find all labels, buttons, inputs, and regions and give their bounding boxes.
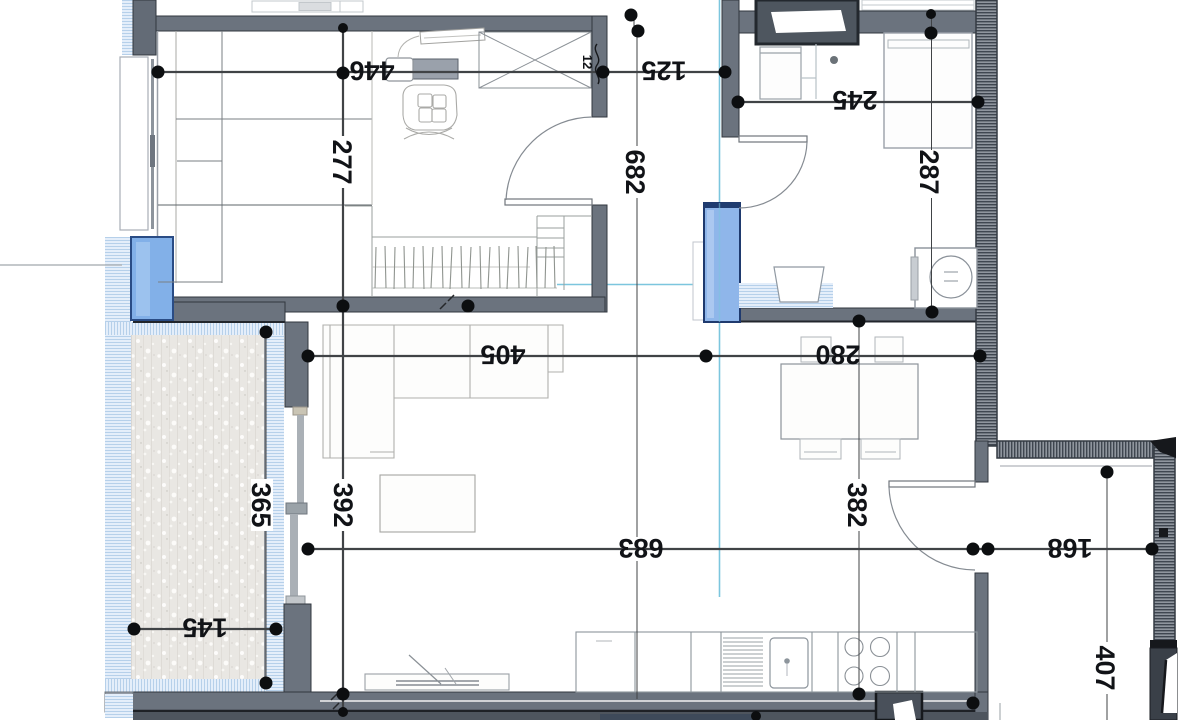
svg-text:382: 382: [842, 482, 872, 527]
svg-text:245: 245: [832, 85, 877, 115]
svg-text:280: 280: [815, 340, 860, 370]
svg-text:683: 683: [618, 533, 663, 563]
svg-text:125: 125: [641, 56, 686, 86]
svg-text:287: 287: [914, 149, 944, 194]
svg-text:277: 277: [327, 139, 357, 184]
svg-text:12: 12: [580, 55, 595, 69]
svg-text:407: 407: [1090, 645, 1120, 690]
svg-text:682: 682: [620, 149, 650, 194]
svg-text:168: 168: [1047, 533, 1092, 563]
svg-text:405: 405: [480, 340, 525, 370]
svg-text:446: 446: [349, 56, 394, 86]
svg-text:365: 365: [246, 482, 276, 527]
svg-text:392: 392: [328, 482, 358, 527]
svg-text:145: 145: [182, 613, 227, 643]
